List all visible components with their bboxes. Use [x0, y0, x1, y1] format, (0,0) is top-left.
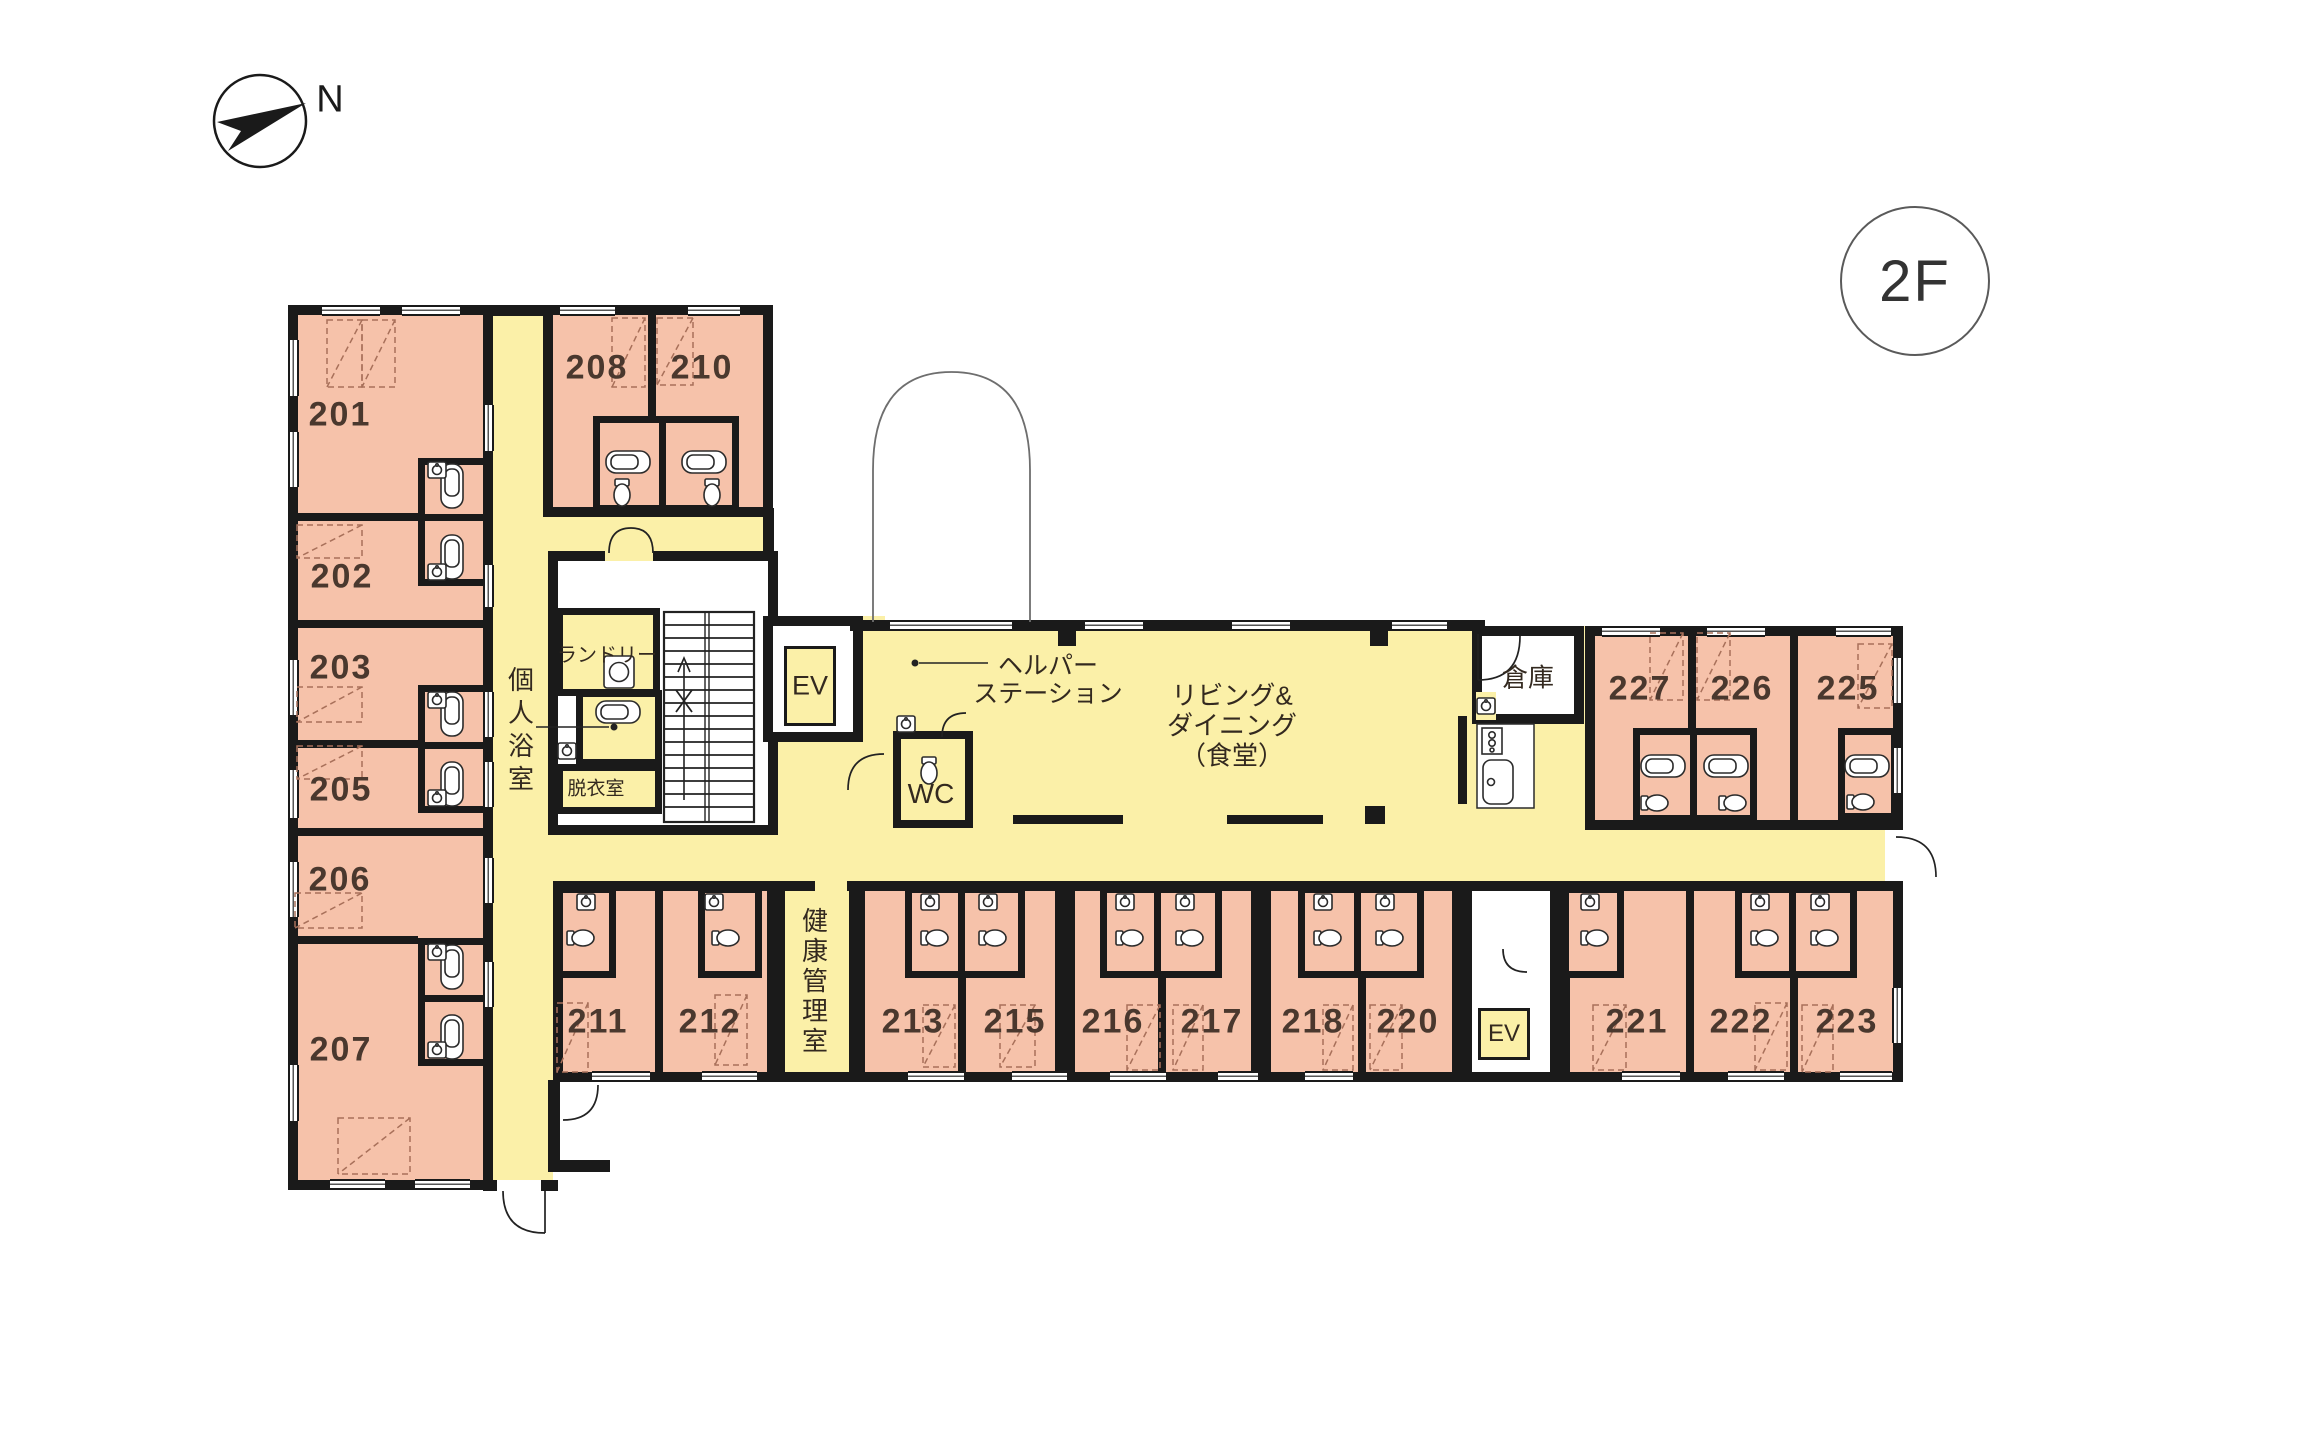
- door-gap: [815, 881, 847, 891]
- bath-pod-222-223: [1735, 886, 1857, 978]
- health-office-label: 健康管理室: [796, 907, 833, 1057]
- window: [322, 305, 380, 316]
- room-label-211: 211: [568, 1003, 629, 1042]
- wall: [483, 305, 553, 316]
- wall: [297, 513, 418, 521]
- wall: [297, 740, 418, 748]
- bath-pod-212: [698, 886, 762, 978]
- bath-pod-208-210: [593, 416, 739, 512]
- room-label-227: 227: [1609, 670, 1672, 709]
- private-bath-label: 個人浴室: [502, 666, 539, 798]
- wall-stub: [1365, 806, 1385, 824]
- wall-kitchen: [1458, 716, 1467, 804]
- wall-stub: [1370, 628, 1388, 646]
- wall-stub: [1227, 815, 1323, 824]
- window: [1110, 1071, 1166, 1082]
- storage-label: 倉庫: [1502, 658, 1554, 695]
- laundry-label: ランドリー: [557, 639, 657, 668]
- window: [1305, 1071, 1353, 1082]
- room-label-223: 223: [1816, 1003, 1879, 1042]
- window: [592, 1071, 650, 1082]
- floor-plan-2f: 201 202 203 205 206 207 208 210 211 212 …: [0, 0, 2301, 1444]
- wall: [425, 995, 483, 1002]
- wall: [548, 1080, 560, 1168]
- room-label-220: 220: [1377, 1003, 1440, 1042]
- door-gap: [483, 692, 494, 737]
- room-label-221: 221: [1606, 1003, 1669, 1042]
- room-label-202: 202: [311, 558, 374, 597]
- elevator2-label: EV: [1488, 1020, 1520, 1048]
- room-label-216: 216: [1082, 1003, 1145, 1042]
- window: [288, 340, 299, 396]
- bath-pod-216-217: [1100, 886, 1222, 978]
- dressing-room-label: 脱衣室: [567, 774, 624, 801]
- wall: [425, 514, 483, 521]
- door-gap: [605, 551, 653, 561]
- wc-label: WC: [908, 778, 955, 810]
- corridor-main: [548, 827, 778, 883]
- window: [1622, 1071, 1680, 1082]
- window: [288, 862, 299, 917]
- wall: [297, 828, 486, 836]
- exit-door-gap: [1890, 835, 1903, 877]
- door-gap: [483, 405, 494, 451]
- room-label-203: 203: [310, 649, 373, 688]
- room-label-205: 205: [310, 771, 373, 810]
- window: [1728, 1071, 1784, 1082]
- room-label-212: 212: [679, 1003, 742, 1042]
- door-gap: [483, 762, 494, 807]
- room-label-213: 213: [882, 1003, 945, 1042]
- wall: [548, 1160, 610, 1172]
- window: [402, 305, 460, 316]
- wall-221-222: [1686, 890, 1694, 1075]
- window: [1392, 620, 1447, 631]
- wall: [1789, 893, 1796, 971]
- wall: [659, 423, 666, 505]
- room-label-222: 222: [1710, 1003, 1773, 1042]
- wall: [425, 742, 483, 749]
- living-dining-label-3: （食堂）: [1180, 736, 1284, 773]
- wall: [1690, 735, 1697, 815]
- floor-badge: 2F: [1840, 206, 1990, 356]
- window: [330, 1179, 385, 1190]
- window: [1012, 1071, 1067, 1082]
- floor-badge-text: 2F: [1879, 248, 1951, 315]
- compass-north-label: N: [316, 79, 343, 122]
- window: [1892, 748, 1903, 793]
- compass-icon: [214, 75, 306, 167]
- wall-stub: [1013, 815, 1123, 824]
- elevator1-label: EV: [792, 671, 828, 702]
- bath-pod-218-220: [1298, 886, 1424, 978]
- kitchen-sink-niche: [1476, 692, 1496, 720]
- window-entrance: [890, 620, 1012, 631]
- window: [288, 660, 299, 715]
- entrance-canopy-arch: [873, 372, 1030, 622]
- bath-pod-201-202: [418, 458, 490, 586]
- bath-pod-213-215: [905, 886, 1025, 978]
- wall: [297, 936, 418, 944]
- window: [1892, 658, 1903, 703]
- room-label-207: 207: [310, 1031, 373, 1070]
- window: [288, 432, 299, 487]
- window: [1707, 626, 1765, 637]
- wall: [958, 893, 965, 971]
- window: [1892, 988, 1903, 1043]
- door-gap: [483, 962, 494, 1007]
- window: [702, 1071, 757, 1082]
- door-gap: [483, 565, 494, 607]
- wall-226-225: [1790, 635, 1798, 823]
- room-label-226: 226: [1711, 670, 1774, 709]
- window: [908, 1071, 964, 1082]
- room-label-208: 208: [566, 349, 629, 388]
- window: [288, 770, 299, 818]
- window: [415, 1179, 470, 1190]
- window: [1602, 626, 1660, 637]
- window: [1232, 620, 1290, 631]
- room-label-217: 217: [1181, 1003, 1244, 1042]
- bath-pod-206-207: [418, 938, 490, 1066]
- wall: [1354, 893, 1361, 971]
- wall: [763, 508, 774, 558]
- window: [1836, 626, 1891, 637]
- room-label-206: 206: [309, 861, 372, 900]
- room-label-201: 201: [309, 396, 372, 435]
- room-label-218: 218: [1282, 1003, 1345, 1042]
- helper-station-label-2: ステーション: [973, 674, 1123, 710]
- window: [688, 305, 740, 316]
- room-label-210: 210: [671, 349, 734, 388]
- wall-211-212: [655, 890, 663, 1075]
- bath-pod-211: [556, 886, 616, 978]
- window: [1218, 1071, 1258, 1082]
- bath-pod-203-205: [418, 685, 490, 813]
- private-bath-room: [576, 690, 662, 766]
- bath-pod-225: [1838, 728, 1898, 820]
- window: [1085, 620, 1143, 631]
- door-gap: [483, 858, 494, 903]
- bath-pod-221: [1562, 886, 1624, 978]
- room-label-225: 225: [1817, 670, 1880, 709]
- wall-stub: [1058, 628, 1076, 646]
- window: [288, 1065, 299, 1121]
- wall: [297, 620, 486, 628]
- window: [560, 305, 615, 316]
- window: [1840, 1071, 1892, 1082]
- room-label-215: 215: [984, 1003, 1047, 1042]
- wall: [1154, 893, 1161, 971]
- exit-door-gap: [497, 1180, 541, 1191]
